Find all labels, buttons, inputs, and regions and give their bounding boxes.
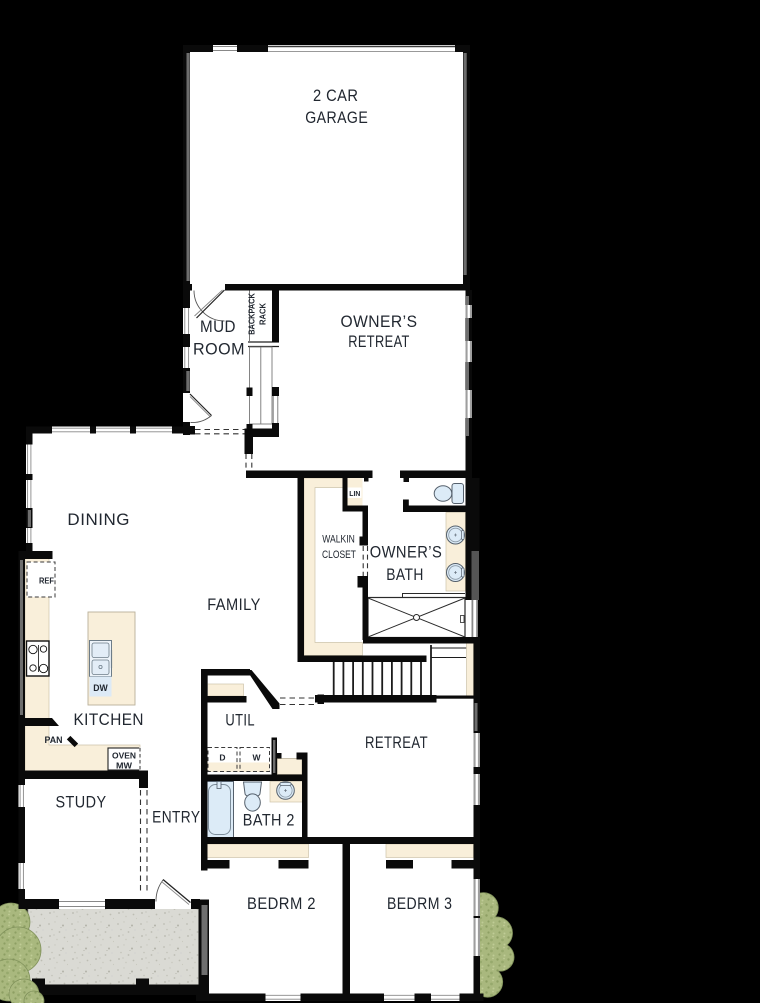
svg-text:WALKIN: WALKIN (322, 534, 355, 546)
svg-text:CLOSET: CLOSET (322, 549, 356, 561)
svg-text:RETREAT: RETREAT (365, 734, 428, 752)
svg-text:MW: MW (116, 761, 133, 771)
svg-text:REF: REF (39, 576, 54, 586)
svg-text:BATH: BATH (386, 566, 424, 584)
svg-text:D: D (219, 753, 225, 763)
svg-text:ROOM: ROOM (193, 341, 245, 359)
svg-text:BEDRM 2: BEDRM 2 (247, 895, 316, 913)
svg-text:LIN: LIN (349, 489, 360, 498)
svg-text:OWNER’S: OWNER’S (370, 544, 443, 562)
svg-text:BATH 2: BATH 2 (243, 812, 295, 830)
svg-text:OWNER’S: OWNER’S (341, 313, 418, 331)
svg-text:DINING: DINING (67, 511, 130, 529)
svg-text:DW: DW (93, 683, 108, 694)
svg-text:KITCHEN: KITCHEN (73, 711, 144, 729)
svg-text:FAMILY: FAMILY (207, 596, 261, 614)
svg-text:ENTRY: ENTRY (152, 808, 200, 826)
svg-text:2 CAR: 2 CAR (313, 87, 359, 105)
svg-text:BEDRM 3: BEDRM 3 (387, 895, 453, 913)
svg-text:RETREAT: RETREAT (348, 333, 410, 351)
svg-text:UTIL: UTIL (225, 711, 255, 729)
svg-text:W: W (252, 753, 261, 763)
svg-text:MUD: MUD (200, 318, 236, 336)
svg-text:OVEN: OVEN (112, 751, 136, 761)
svg-text:STUDY: STUDY (56, 794, 107, 812)
svg-text:GARAGE: GARAGE (305, 109, 368, 127)
svg-text:BACKPACK: BACKPACK (247, 293, 256, 335)
svg-text:PAN: PAN (45, 735, 63, 746)
svg-text:RACK: RACK (259, 303, 268, 325)
